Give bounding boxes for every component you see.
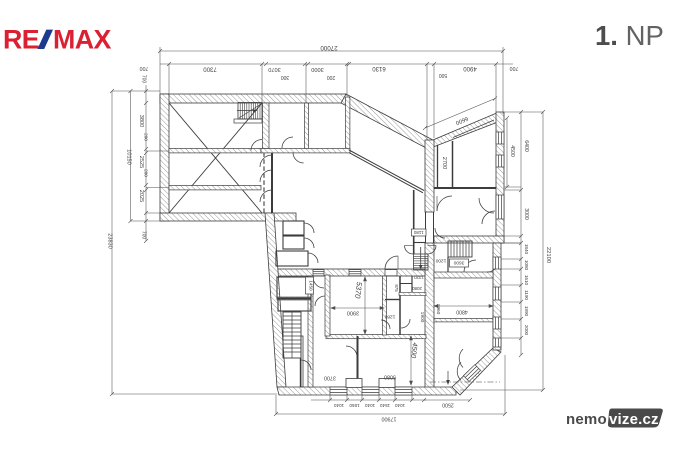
svg-text:1200: 1200	[435, 258, 446, 264]
svg-text:300: 300	[281, 74, 290, 80]
svg-text:1040: 1040	[394, 403, 405, 408]
svg-text:27000: 27000	[320, 44, 338, 51]
svg-text:2080: 2080	[412, 286, 422, 291]
svg-text:6400: 6400	[523, 140, 529, 152]
svg-text:875: 875	[394, 284, 399, 292]
svg-text:4500: 4500	[509, 145, 515, 157]
svg-text:22100: 22100	[545, 247, 551, 263]
svg-text:1080: 1080	[524, 260, 529, 271]
svg-text:1990: 1990	[524, 306, 529, 317]
svg-text:1180: 1180	[413, 230, 423, 235]
svg-text:3900: 3900	[347, 310, 359, 316]
svg-text:1. NP: 1. NP	[595, 20, 664, 51]
svg-text:3800: 3800	[138, 115, 144, 127]
svg-text:200: 200	[144, 133, 149, 141]
svg-text:2025: 2025	[138, 190, 144, 202]
svg-text:1540: 1540	[379, 403, 390, 408]
svg-text:700: 700	[141, 231, 147, 240]
svg-text:1840: 1840	[524, 244, 529, 255]
svg-text:500: 500	[439, 72, 448, 78]
svg-text:1550: 1550	[349, 403, 360, 408]
svg-text:1610: 1610	[524, 275, 529, 286]
svg-text:700: 700	[141, 75, 147, 84]
svg-text:2525: 2525	[138, 156, 144, 168]
svg-text:1450: 1450	[309, 280, 314, 291]
svg-text:17900: 17900	[382, 416, 397, 422]
svg-text:vize.cz: vize.cz	[609, 411, 659, 428]
svg-text:2700: 2700	[441, 157, 447, 169]
svg-text:200: 200	[327, 74, 336, 80]
svg-text:4800: 4800	[456, 308, 468, 314]
svg-text:1320: 1320	[414, 275, 424, 280]
svg-text:3000: 3000	[311, 66, 323, 72]
svg-text:1040: 1040	[364, 403, 375, 408]
svg-text:2000: 2000	[524, 325, 529, 336]
svg-text:3070: 3070	[268, 66, 280, 72]
svg-text:23830: 23830	[107, 233, 113, 249]
svg-text:1040: 1040	[333, 403, 344, 408]
svg-text:RE: RE	[3, 25, 39, 55]
svg-text:nemo: nemo	[566, 411, 607, 428]
svg-text:700: 700	[510, 65, 519, 71]
svg-text:3000: 3000	[523, 208, 529, 220]
svg-text:700: 700	[140, 65, 149, 71]
svg-text:3700: 3700	[324, 375, 336, 381]
svg-text:1900: 1900	[419, 312, 425, 323]
svg-text:3600: 3600	[453, 260, 464, 266]
svg-text:7300: 7300	[203, 66, 217, 72]
svg-text:MAX: MAX	[53, 25, 111, 55]
svg-text:1960: 1960	[435, 304, 441, 315]
svg-text:1280: 1280	[384, 314, 395, 320]
svg-text:1190: 1190	[524, 290, 529, 300]
svg-text:200: 200	[144, 169, 149, 177]
svg-text:4900: 4900	[463, 65, 477, 71]
svg-text:5080: 5080	[384, 374, 396, 380]
svg-text:2500: 2500	[442, 402, 454, 408]
svg-text:6130: 6130	[372, 65, 386, 71]
svg-text:10150: 10150	[126, 149, 132, 165]
